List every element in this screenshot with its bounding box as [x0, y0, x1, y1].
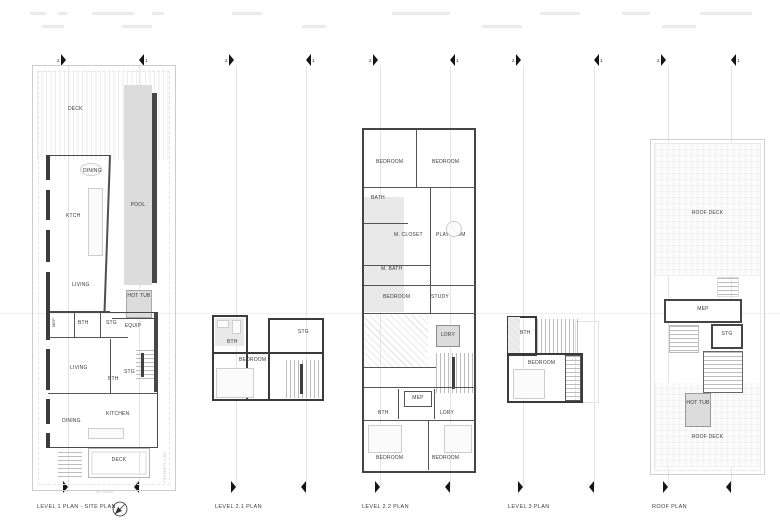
section-marker-top: 1	[306, 54, 315, 66]
dimension-tick	[482, 25, 522, 28]
wall-segment	[416, 129, 417, 187]
section-arrow-icon	[594, 54, 599, 66]
room-label-mep: MEP	[664, 307, 742, 313]
dimension-tick	[392, 12, 450, 15]
section-arrow-icon	[731, 54, 736, 66]
section-line	[523, 66, 524, 487]
room-label-laundry: LDRY	[440, 411, 454, 417]
stairwell	[703, 351, 743, 393]
room-label-laundry: LDRY	[436, 333, 460, 339]
room-label-pool: POOL	[124, 203, 152, 209]
kitchen-island	[88, 188, 103, 256]
drawing-sheet: 2 1 2 1 2 1 2 1 2 1 DECK POOL DINING KTC…	[0, 0, 780, 520]
plan-level-1-site: DECK POOL DINING KTCH LIVING HOT TUB EQU…	[30, 60, 180, 496]
room-label-bath: BTH	[378, 411, 389, 417]
dimension-tick	[540, 12, 580, 15]
room-label-bedroom: BEDROOM	[239, 358, 266, 364]
window-gap	[46, 340, 50, 349]
stair	[58, 452, 82, 478]
section-arrow-icon	[518, 481, 523, 493]
window-gap	[46, 390, 50, 399]
bed	[513, 369, 545, 399]
exterior-wall	[46, 155, 50, 312]
hot-tub	[685, 393, 711, 427]
section-arrow-icon	[229, 54, 234, 66]
section-marker-top: 1	[594, 54, 603, 66]
section-marker-bottom	[445, 481, 450, 493]
stair-wall	[141, 353, 144, 377]
room-label-deck: DECK	[68, 107, 83, 113]
section-marker-top: 2	[369, 54, 378, 66]
room-label-storage: STG	[106, 321, 117, 327]
room-label-storage: STG	[298, 330, 309, 336]
window-gap	[46, 220, 50, 230]
stair	[286, 360, 322, 398]
dimension-tick	[42, 25, 64, 28]
wall-segment	[74, 313, 75, 338]
section-marker-bottom	[518, 481, 523, 493]
closet	[565, 355, 581, 401]
room-label-bath: BTH	[78, 321, 89, 327]
section-number: 1	[737, 58, 740, 63]
room-label-bath: BTH	[108, 377, 119, 383]
section-marker-top: 2	[225, 54, 234, 66]
wall-segment	[364, 367, 436, 368]
bed	[444, 425, 472, 453]
dimension-tick	[622, 12, 650, 15]
section-arrow-icon	[589, 481, 594, 493]
caption-roof: ROOF PLAN	[652, 504, 687, 510]
caption-level-3: LEVEL 3 PLAN	[508, 504, 550, 510]
section-number: 2	[657, 58, 660, 63]
property-line-label: PROPERTY LINE	[163, 452, 167, 482]
dimension-tick	[302, 25, 326, 28]
section-number: 2	[225, 58, 228, 63]
wall-segment	[428, 420, 429, 470]
dimension-tick	[122, 25, 152, 28]
playroom-table	[446, 221, 462, 237]
section-marker-bottom	[663, 481, 668, 493]
dimension-tick	[662, 25, 696, 28]
section-line	[594, 66, 595, 487]
plan-level-2-1: BTH STG BEDROOM	[210, 312, 326, 404]
wall-segment	[364, 420, 476, 421]
room-label-bedroom: BEDROOM	[432, 160, 459, 166]
room-label-mep: MEP	[52, 318, 57, 327]
section-marker-bottom	[375, 481, 380, 493]
room-label-dining: DINING	[83, 169, 102, 175]
room-label-bedroom: BEDROOM	[528, 361, 555, 367]
stair	[669, 325, 699, 353]
section-marker-bottom	[589, 481, 594, 493]
room-label-kitchen: KTCH	[66, 214, 80, 220]
section-arrow-icon	[375, 481, 380, 493]
dimension-tick	[232, 12, 262, 15]
room-label-roof-deck: ROOF DECK	[655, 435, 760, 441]
room-label-mep: MEP	[404, 396, 432, 402]
room-label-living: LIVING	[70, 366, 88, 372]
wall-segment	[364, 387, 476, 388]
section-line	[306, 66, 307, 487]
section-arrow-icon	[301, 481, 306, 493]
section-number: 1	[600, 58, 603, 63]
caption-level-2-1: LEVEL 2.1 PLAN	[215, 504, 262, 510]
room-label-study: STUDY	[431, 295, 449, 301]
section-marker-bottom	[726, 481, 731, 493]
section-number: 2	[512, 58, 515, 63]
wall-segment	[398, 389, 399, 419]
section-number: 2	[369, 58, 372, 63]
section-arrow-icon	[726, 481, 731, 493]
caption-level-2-2: LEVEL 2.2 PLAN	[362, 504, 409, 510]
setback-label: SETBACK	[96, 490, 114, 494]
section-arrow-icon	[306, 54, 311, 66]
room-label-bath: BTH	[227, 340, 238, 346]
section-marker-bottom	[231, 481, 236, 493]
open-deck-hatch	[364, 315, 428, 367]
bath-fixture	[217, 320, 229, 328]
room-label-dining: DINING	[62, 419, 81, 425]
dimension-tick	[152, 12, 164, 15]
section-number: 1	[312, 58, 315, 63]
section-arrow-icon	[373, 54, 378, 66]
stair	[537, 319, 579, 353]
section-arrow-icon	[516, 54, 521, 66]
room-label-roof-deck: ROOF DECK	[655, 211, 760, 217]
section-arrow-icon	[450, 54, 455, 66]
dimension-tick	[700, 12, 752, 15]
pool	[124, 85, 152, 285]
section-marker-top: 2	[512, 54, 521, 66]
wall-segment	[434, 389, 435, 419]
section-marker-top: 1	[731, 54, 740, 66]
wall-segment	[48, 393, 158, 394]
stair	[717, 277, 739, 297]
section-arrow-icon	[663, 481, 668, 493]
room-label-bedroom: BEDROOM	[376, 456, 403, 462]
room-label-living: LIVING	[72, 283, 90, 289]
section-marker-bottom	[301, 481, 306, 493]
wall-segment	[110, 339, 111, 393]
room-label-deck: DECK	[88, 458, 150, 464]
room-label-m-closet: M. CLOSET	[394, 233, 423, 239]
plan-level-3: BTH BEDROOM	[505, 313, 601, 405]
wall-segment	[364, 187, 476, 188]
section-number: 1	[456, 58, 459, 63]
plan-level-2-2: BEDROOM BEDROOM BATH M. CLOSET PLAYROOM …	[360, 125, 480, 477]
dimension-tick	[92, 12, 134, 15]
room-label-bath: BATH	[371, 196, 385, 202]
stair	[136, 350, 154, 380]
section-arrow-icon	[661, 54, 666, 66]
section-arrow-icon	[231, 481, 236, 493]
room-label-bedroom: BEDROOM	[432, 456, 459, 462]
wall-segment	[48, 337, 128, 338]
wall-segment	[364, 223, 408, 224]
bed	[368, 425, 402, 453]
room-label-hot-tub: HOT TUB	[126, 294, 152, 300]
room-label-storage: STG	[711, 332, 743, 338]
room-label-hot-tub: HOT TUB	[685, 401, 711, 407]
window-gap	[46, 262, 50, 272]
window-gap	[46, 424, 50, 433]
section-line	[236, 66, 237, 487]
caption-level-1: LEVEL 1 PLAN - SITE PLAN	[37, 504, 116, 510]
plan-roof: ROOF DECK ROOF DECK MEP STG HOT TUB	[645, 135, 770, 480]
section-marker-top: 2	[657, 54, 666, 66]
north-arrow-icon	[112, 501, 128, 517]
bed	[216, 368, 254, 398]
wall-segment	[364, 285, 476, 286]
room-label-bath: BTH	[520, 331, 531, 337]
stair-wall	[300, 364, 303, 394]
stair-wall	[452, 357, 455, 389]
bath-hatch	[508, 317, 520, 354]
dimension-tick	[58, 12, 67, 15]
room-label-bedroom: BEDROOM	[376, 160, 403, 166]
section-marker-top: 1	[450, 54, 459, 66]
wall-segment	[100, 313, 101, 338]
section-arrow-icon	[445, 481, 450, 493]
room-label-bedroom: BEDROOM	[383, 295, 410, 301]
bath-fixture	[232, 320, 241, 334]
window-gap	[46, 180, 50, 190]
room-label-storage: STG	[124, 370, 135, 376]
kitchen-island	[88, 428, 124, 439]
dimension-tick	[30, 12, 46, 15]
room-label-m-bath: M. BATH	[381, 267, 402, 273]
room-label-kitchen: KITCHEN	[106, 412, 129, 418]
wall-segment	[154, 312, 158, 392]
pool-wall	[152, 93, 157, 283]
